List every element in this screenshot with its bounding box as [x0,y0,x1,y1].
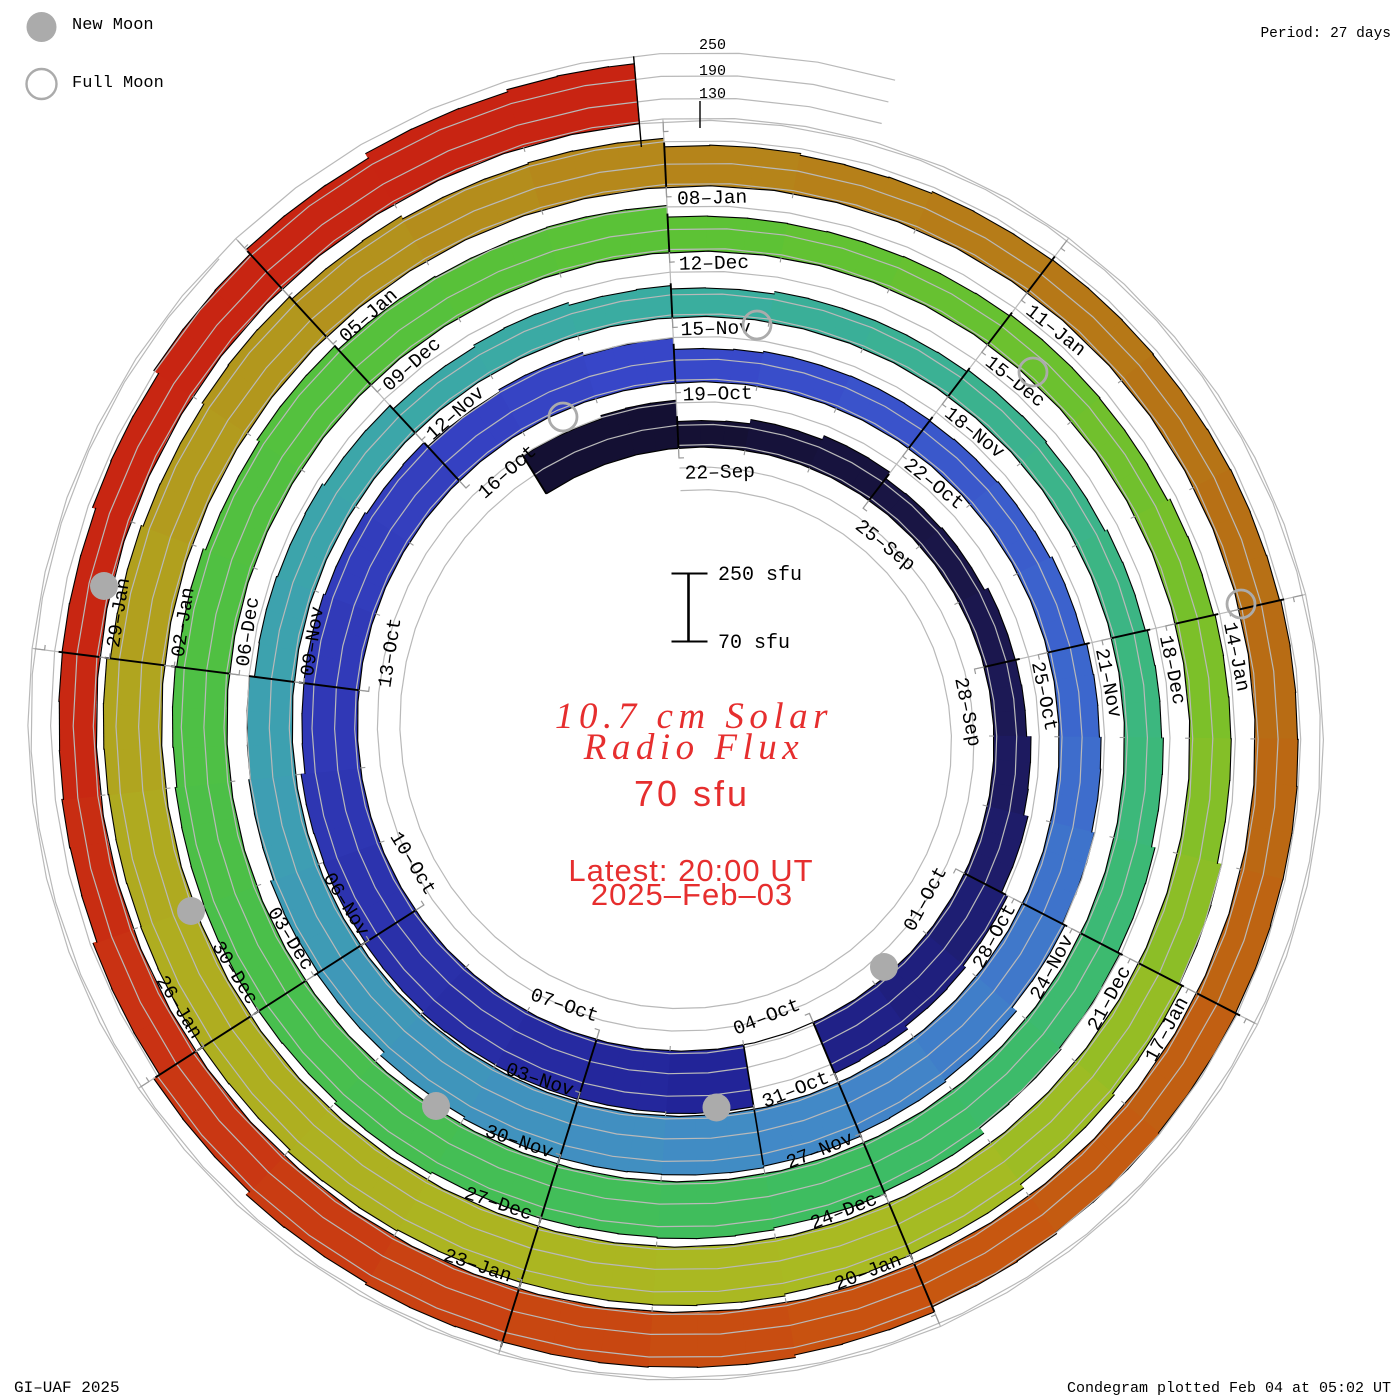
svg-text:22–Sep: 22–Sep [684,461,755,485]
svg-text:New Moon: New Moon [72,16,154,35]
svg-text:130: 130 [699,86,726,103]
svg-text:Radio Flux: Radio Flux [583,727,804,768]
svg-text:12–Dec: 12–Dec [679,252,750,276]
svg-text:70 sfu: 70 sfu [718,632,790,655]
svg-text:Condegram plotted Feb 04 at 05: Condegram plotted Feb 04 at 05:02 UT [1067,1380,1391,1397]
svg-text:2025–Feb–03: 2025–Feb–03 [591,877,793,912]
svg-text:190: 190 [699,63,726,80]
svg-text:70 sfu: 70 sfu [634,773,750,814]
svg-text:19–Oct: 19–Oct [682,383,753,407]
svg-text:250: 250 [699,37,726,54]
svg-text:250 sfu: 250 sfu [718,564,802,587]
svg-text:15–Nov: 15–Nov [680,317,751,341]
svg-text:Period: 27 days: Period: 27 days [1260,26,1391,42]
svg-text:Full Moon: Full Moon [72,74,164,93]
svg-text:GI–UAF 2025: GI–UAF 2025 [14,1379,120,1397]
svg-text:08–Jan: 08–Jan [677,187,748,211]
